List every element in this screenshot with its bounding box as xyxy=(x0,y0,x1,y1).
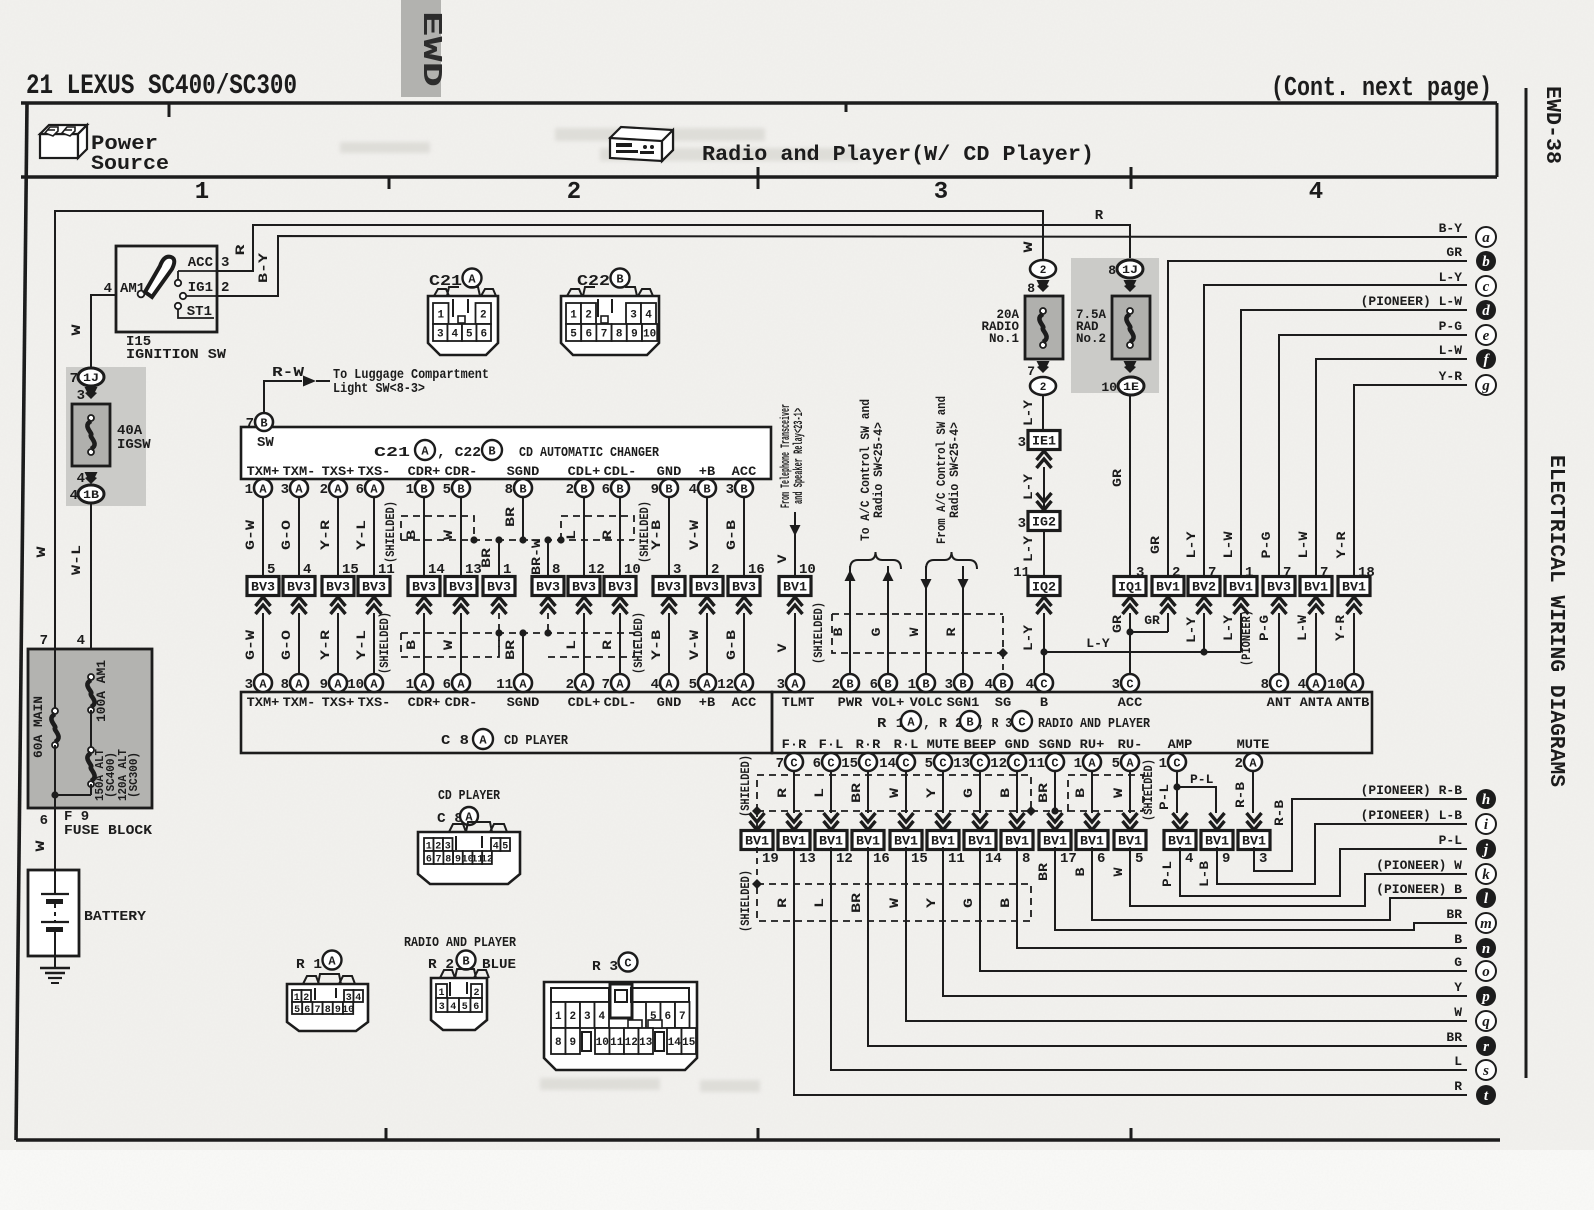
svg-text:TXS-: TXS- xyxy=(358,464,391,479)
svg-text:BV3: BV3 xyxy=(732,581,756,595)
svg-text:10: 10 xyxy=(347,677,364,693)
svg-text:B-Y: B-Y xyxy=(1439,221,1463,236)
svg-text:A: A xyxy=(791,678,799,692)
svg-text:(Cont. next page): (Cont. next page) xyxy=(1271,74,1492,104)
svg-text:Light SW<8-3>: Light SW<8-3> xyxy=(333,381,425,397)
svg-text:Y: Y xyxy=(925,787,939,798)
svg-text:5: 5 xyxy=(267,562,275,578)
svg-text:L: L xyxy=(565,530,579,540)
svg-text:IGSW: IGSW xyxy=(117,437,151,453)
svg-text:GND: GND xyxy=(657,695,682,710)
svg-text:R-B: R-B xyxy=(1234,781,1248,808)
svg-text:L-B: L-B xyxy=(1198,860,1212,887)
svg-text:ELECTRICAL WIRING DIAGRAMS: ELECTRICAL WIRING DIAGRAMS xyxy=(1544,455,1567,787)
svg-text:L: L xyxy=(813,898,827,908)
svg-text:A: A xyxy=(259,678,267,692)
svg-text:BATTERY: BATTERY xyxy=(84,909,147,925)
svg-text:2: 2 xyxy=(566,677,574,693)
svg-text:R: R xyxy=(945,627,959,637)
svg-text:B: B xyxy=(420,483,427,497)
svg-text:4: 4 xyxy=(651,677,659,693)
svg-text:n: n xyxy=(1482,941,1490,957)
svg-text:9: 9 xyxy=(1222,851,1230,867)
svg-text:G-B: G-B xyxy=(725,629,739,660)
svg-text:9: 9 xyxy=(651,482,659,498)
svg-text:CDL+: CDL+ xyxy=(568,695,601,710)
svg-text:Y: Y xyxy=(1454,980,1462,995)
svg-text:BR: BR xyxy=(1446,907,1462,922)
svg-text:B: B xyxy=(999,787,1013,798)
svg-text:P-G: P-G xyxy=(1260,532,1274,559)
svg-text:21 LEXUS SC400/SC300: 21 LEXUS SC400/SC300 xyxy=(26,71,297,102)
svg-text:(SHIELDED): (SHIELDED) xyxy=(1142,759,1156,821)
svg-text:CD PLAYER: CD PLAYER xyxy=(438,788,500,804)
svg-text:10: 10 xyxy=(342,1005,354,1016)
svg-text:4: 4 xyxy=(450,1002,456,1013)
svg-text:4: 4 xyxy=(77,633,85,649)
svg-text:SGND: SGND xyxy=(1039,737,1072,752)
svg-text:P-L: P-L xyxy=(1439,833,1463,848)
svg-text:5: 5 xyxy=(570,329,577,341)
svg-text:V: V xyxy=(776,643,790,653)
svg-text:9: 9 xyxy=(455,855,461,866)
svg-text:G: G xyxy=(962,898,976,908)
svg-text:13: 13 xyxy=(639,1037,653,1049)
svg-text:B: B xyxy=(462,955,469,969)
svg-text:11: 11 xyxy=(948,851,965,867)
svg-text:W: W xyxy=(1021,241,1036,252)
svg-text:17: 17 xyxy=(1060,851,1077,867)
svg-text:CDL-: CDL- xyxy=(604,464,637,479)
svg-text:4: 4 xyxy=(1185,851,1193,867)
svg-text:7: 7 xyxy=(776,756,784,772)
svg-text:7: 7 xyxy=(602,677,610,693)
svg-text:W-L: W-L xyxy=(69,545,84,575)
svg-text:To A/C Control SW and: To A/C Control SW and xyxy=(859,399,873,541)
svg-text:GR: GR xyxy=(1144,613,1160,628)
svg-text:R-B: R-B xyxy=(1273,799,1287,826)
svg-text:5: 5 xyxy=(925,756,933,772)
svg-text:P-G: P-G xyxy=(1439,319,1463,334)
svg-text:12: 12 xyxy=(836,851,853,867)
svg-text:C: C xyxy=(864,757,871,771)
svg-text:B: B xyxy=(703,483,710,497)
svg-text:6: 6 xyxy=(304,1005,310,1016)
svg-text:(SC300): (SC300) xyxy=(128,752,141,798)
svg-text:11: 11 xyxy=(378,562,395,578)
svg-text:10: 10 xyxy=(596,1037,609,1049)
svg-text:C21: C21 xyxy=(374,445,410,461)
svg-text:3: 3 xyxy=(1259,851,1267,867)
svg-text:8: 8 xyxy=(552,562,560,578)
svg-text:CDL-: CDL- xyxy=(604,695,637,710)
svg-text:Y-R: Y-R xyxy=(319,629,333,660)
svg-text:R·R: R·R xyxy=(856,737,881,752)
svg-text:(SHIELDED): (SHIELDED) xyxy=(812,602,826,664)
svg-text:G-B: G-B xyxy=(725,519,739,550)
svg-text:A: A xyxy=(457,678,465,692)
svg-text:Y-B: Y-B xyxy=(650,629,664,660)
svg-text:R: R xyxy=(776,897,790,908)
svg-text:10: 10 xyxy=(1327,677,1344,693)
svg-text:A: A xyxy=(580,678,588,692)
svg-text:5: 5 xyxy=(443,482,451,498)
svg-text:2: 2 xyxy=(1235,756,1243,772)
svg-text:BV1: BV1 xyxy=(1205,835,1229,849)
svg-text:5: 5 xyxy=(462,1002,468,1013)
svg-text:No.2: No.2 xyxy=(1076,332,1106,346)
svg-text:d: d xyxy=(1482,303,1490,319)
svg-text:A: A xyxy=(703,678,711,692)
svg-text:MUTE: MUTE xyxy=(1237,737,1270,752)
svg-text:B: B xyxy=(1454,932,1462,947)
svg-text:8: 8 xyxy=(1022,851,1030,867)
svg-text:BV3: BV3 xyxy=(572,581,596,595)
svg-text:TXM+: TXM+ xyxy=(247,695,280,710)
svg-text:BR: BR xyxy=(1446,1030,1462,1045)
svg-text:GR: GR xyxy=(1446,245,1462,260)
svg-text:TXM-: TXM- xyxy=(283,464,316,479)
svg-text:B: B xyxy=(1074,867,1088,877)
svg-text:BV3: BV3 xyxy=(251,581,275,595)
svg-text:FUSE BLOCK: FUSE BLOCK xyxy=(64,823,153,839)
svg-text:8: 8 xyxy=(445,855,451,866)
svg-text:A: A xyxy=(259,483,267,497)
svg-text:ACC: ACC xyxy=(1118,695,1143,710)
svg-text:A: A xyxy=(1350,678,1358,692)
svg-text:V: V xyxy=(776,554,790,564)
svg-text:A: A xyxy=(1088,757,1096,771)
svg-text:BV1: BV1 xyxy=(1229,581,1253,595)
svg-text:BV1: BV1 xyxy=(1005,835,1029,849)
svg-text:6: 6 xyxy=(473,1002,479,1013)
svg-text:+B: +B xyxy=(699,695,716,710)
svg-text:3: 3 xyxy=(281,482,289,498)
svg-text:A: A xyxy=(1312,678,1320,692)
svg-text:CDR-: CDR- xyxy=(445,464,478,479)
svg-text:BR: BR xyxy=(850,782,864,803)
svg-text:BR: BR xyxy=(1037,862,1051,881)
svg-text:G: G xyxy=(870,628,884,637)
svg-text:e: e xyxy=(1483,328,1490,344)
svg-text:1J: 1J xyxy=(83,373,99,385)
svg-text:PWR: PWR xyxy=(838,695,863,710)
svg-text:4: 4 xyxy=(451,329,458,341)
svg-text:q: q xyxy=(1482,1014,1490,1030)
svg-text:7: 7 xyxy=(679,1011,686,1023)
svg-text:GR: GR xyxy=(1111,614,1125,633)
svg-text:Y-R: Y-R xyxy=(1334,614,1348,641)
svg-text:R: R xyxy=(601,529,615,540)
svg-text:BV3: BV3 xyxy=(657,581,681,595)
svg-text:B: B xyxy=(405,639,419,650)
svg-text:A: A xyxy=(370,483,378,497)
svg-text:R 1: R 1 xyxy=(296,957,322,973)
svg-text:ACC: ACC xyxy=(188,255,214,271)
svg-text:15: 15 xyxy=(911,851,928,867)
svg-text:o: o xyxy=(1482,964,1490,980)
svg-text:BV3: BV3 xyxy=(326,581,350,595)
svg-text:12: 12 xyxy=(588,562,605,578)
svg-text:2: 2 xyxy=(320,482,328,498)
svg-text:3: 3 xyxy=(726,482,734,498)
svg-text:L: L xyxy=(813,788,827,798)
svg-text:BV3: BV3 xyxy=(362,581,386,595)
svg-text:6: 6 xyxy=(356,482,364,498)
svg-text:W: W xyxy=(442,529,456,540)
svg-text:11: 11 xyxy=(496,677,513,693)
svg-text:, R 2: , R 2 xyxy=(923,716,963,732)
svg-text:c: c xyxy=(1483,279,1490,295)
svg-text:2: 2 xyxy=(585,310,592,322)
svg-text:C: C xyxy=(1051,757,1058,771)
svg-text:R-W: R-W xyxy=(272,365,305,381)
svg-text:B: B xyxy=(999,897,1013,908)
svg-text:BV1: BV1 xyxy=(1043,835,1067,849)
svg-text:VOL+: VOL+ xyxy=(872,695,905,710)
svg-text:BV1: BV1 xyxy=(1168,835,1192,849)
svg-text:L-W: L-W xyxy=(1296,614,1310,641)
svg-text:(SHIELDED): (SHIELDED) xyxy=(739,755,753,817)
svg-text:C: C xyxy=(939,757,946,771)
svg-text:L-Y: L-Y xyxy=(1022,535,1036,562)
svg-text:A: A xyxy=(665,678,673,692)
svg-text:CD PLAYER: CD PLAYER xyxy=(504,733,568,749)
svg-text:7: 7 xyxy=(40,633,48,649)
svg-text:V-W: V-W xyxy=(688,519,702,550)
svg-text:L: L xyxy=(565,640,579,650)
svg-text:R: R xyxy=(233,244,248,255)
svg-text:G-O: G-O xyxy=(280,519,294,550)
svg-text:15: 15 xyxy=(682,1037,696,1049)
svg-text:B: B xyxy=(665,483,672,497)
svg-text:4: 4 xyxy=(70,488,78,504)
svg-text:9: 9 xyxy=(335,1005,341,1016)
svg-text:BV3: BV3 xyxy=(695,581,719,595)
svg-text:L-Y: L-Y xyxy=(1022,624,1036,651)
svg-text:p: p xyxy=(1480,989,1490,1005)
svg-text:1: 1 xyxy=(437,310,444,322)
svg-text:m: m xyxy=(1480,916,1492,932)
svg-text:Y-R: Y-R xyxy=(319,519,333,550)
svg-text:TLMT: TLMT xyxy=(782,695,815,710)
svg-text:12: 12 xyxy=(990,756,1007,772)
svg-text:1: 1 xyxy=(1074,756,1082,772)
svg-text:19: 19 xyxy=(762,851,779,867)
svg-text:A: A xyxy=(420,678,428,692)
svg-text:6: 6 xyxy=(443,677,451,693)
svg-text:L-Y: L-Y xyxy=(1185,531,1199,559)
svg-text:W: W xyxy=(442,639,456,650)
svg-text:A: A xyxy=(1249,757,1257,771)
svg-text:W: W xyxy=(1112,787,1126,798)
svg-text:(SHIELDED): (SHIELDED) xyxy=(632,612,646,674)
svg-text:2: 2 xyxy=(480,310,487,322)
svg-text:L-Y: L-Y xyxy=(1222,614,1236,641)
svg-text:(PIONEER): (PIONEER) xyxy=(1240,610,1254,666)
svg-text:2: 2 xyxy=(569,1011,576,1023)
svg-text:2: 2 xyxy=(567,179,581,206)
svg-text:12: 12 xyxy=(625,1037,638,1049)
svg-text:3: 3 xyxy=(945,677,953,693)
svg-text:B: B xyxy=(1040,695,1048,710)
svg-text:B: B xyxy=(457,483,464,497)
svg-text:8: 8 xyxy=(1108,263,1116,278)
svg-text:10: 10 xyxy=(624,562,641,578)
svg-text:8: 8 xyxy=(1027,281,1035,296)
svg-text:B: B xyxy=(519,483,526,497)
svg-text:RADIO AND PLAYER: RADIO AND PLAYER xyxy=(404,935,516,951)
svg-text:BEEP: BEEP xyxy=(964,737,997,752)
svg-text:(PIONEER) W: (PIONEER) W xyxy=(1376,858,1462,873)
svg-text:B: B xyxy=(488,445,495,459)
svg-text:4: 4 xyxy=(77,471,85,487)
svg-text:3: 3 xyxy=(1018,435,1026,451)
svg-text:7: 7 xyxy=(436,855,442,866)
svg-text:C: C xyxy=(1013,757,1020,771)
svg-text:7: 7 xyxy=(314,1005,320,1016)
svg-text:P-G: P-G xyxy=(1258,615,1272,641)
svg-text:RADIO AND PLAYER: RADIO AND PLAYER xyxy=(1038,716,1150,732)
svg-text:BR: BR xyxy=(504,506,518,527)
svg-text:BV1: BV1 xyxy=(1342,581,1366,595)
svg-text:BV1: BV1 xyxy=(968,835,992,849)
svg-text:BV1: BV1 xyxy=(894,835,918,849)
svg-text:10: 10 xyxy=(643,329,656,341)
svg-text:6: 6 xyxy=(1097,851,1105,867)
svg-text:A: A xyxy=(334,678,342,692)
svg-text:CDL+: CDL+ xyxy=(568,464,601,479)
svg-text:1: 1 xyxy=(245,482,253,498)
svg-text:BV1: BV1 xyxy=(1156,581,1180,595)
svg-text:BV1: BV1 xyxy=(819,835,843,849)
svg-text:13: 13 xyxy=(953,756,970,772)
svg-text:3: 3 xyxy=(777,677,785,693)
svg-text:A: A xyxy=(468,273,476,287)
svg-text:7: 7 xyxy=(70,371,78,387)
svg-text:C: C xyxy=(976,757,983,771)
svg-text:4: 4 xyxy=(985,677,993,693)
svg-text:14: 14 xyxy=(428,562,445,578)
svg-text:Y-L: Y-L xyxy=(355,520,369,550)
svg-text:5: 5 xyxy=(1135,851,1143,867)
svg-text:b: b xyxy=(1482,254,1490,270)
svg-text:GR: GR xyxy=(1111,468,1125,487)
svg-text:6: 6 xyxy=(664,1011,671,1023)
svg-text:7: 7 xyxy=(246,416,254,432)
svg-text:BV3: BV3 xyxy=(287,581,311,595)
svg-text:9: 9 xyxy=(320,677,328,693)
svg-text:g: g xyxy=(1481,378,1490,394)
svg-text:RU+: RU+ xyxy=(1080,737,1105,752)
svg-text:(PIONEER) B: (PIONEER) B xyxy=(1376,882,1462,897)
svg-text:TXM-: TXM- xyxy=(283,695,316,710)
svg-text:15: 15 xyxy=(342,562,359,578)
svg-text:5: 5 xyxy=(502,842,508,853)
svg-text:7: 7 xyxy=(601,329,608,341)
svg-text:3: 3 xyxy=(437,329,444,341)
svg-text:1: 1 xyxy=(1159,756,1167,772)
svg-text:TXS+: TXS+ xyxy=(322,695,355,710)
svg-text:1: 1 xyxy=(195,179,209,206)
svg-text:8: 8 xyxy=(616,329,623,341)
svg-text:V-W: V-W xyxy=(688,629,702,660)
svg-text:s: s xyxy=(1482,1063,1489,1079)
svg-text:P-L: P-L xyxy=(1190,772,1214,787)
svg-text:8: 8 xyxy=(325,1005,331,1016)
svg-text:B: B xyxy=(405,529,419,540)
svg-text:3: 3 xyxy=(934,179,948,206)
svg-text:W: W xyxy=(69,324,84,335)
svg-text:BR: BR xyxy=(480,547,494,568)
svg-text:6: 6 xyxy=(426,855,432,866)
svg-text:1J: 1J xyxy=(1122,265,1138,277)
svg-text:(SHIELDED): (SHIELDED) xyxy=(638,501,652,563)
svg-text:ANTB: ANTB xyxy=(1337,695,1370,710)
svg-text:6: 6 xyxy=(602,482,610,498)
svg-text:R: R xyxy=(1454,1079,1462,1094)
svg-text:3: 3 xyxy=(77,388,85,404)
svg-text:10: 10 xyxy=(1101,380,1117,395)
svg-text:TXM+: TXM+ xyxy=(247,464,280,479)
svg-text:G: G xyxy=(1454,955,1462,970)
svg-text:ANT: ANT xyxy=(1267,695,1292,710)
svg-text:EWD: EWD xyxy=(415,11,445,87)
svg-text:2: 2 xyxy=(711,562,719,578)
svg-text:G-W: G-W xyxy=(244,629,258,660)
svg-text:Source: Source xyxy=(91,153,169,176)
svg-text:BV3: BV3 xyxy=(536,581,560,595)
svg-text:L-Y: L-Y xyxy=(1185,616,1199,643)
svg-text:a: a xyxy=(1482,230,1490,246)
svg-text:L-Y: L-Y xyxy=(1086,636,1110,651)
svg-text:8: 8 xyxy=(555,1037,562,1049)
svg-text:W: W xyxy=(33,840,48,851)
svg-text:EWD-38: EWD-38 xyxy=(1540,86,1563,164)
svg-text:BR: BR xyxy=(1037,782,1051,803)
svg-text:B: B xyxy=(999,678,1006,692)
svg-text:CDR-: CDR- xyxy=(445,695,478,710)
svg-text:C: C xyxy=(1040,678,1047,692)
svg-text:3: 3 xyxy=(1018,516,1026,532)
svg-text:4: 4 xyxy=(1298,677,1306,693)
svg-text:4: 4 xyxy=(598,1011,605,1023)
svg-text:F·L: F·L xyxy=(819,737,844,752)
svg-text:VOLC: VOLC xyxy=(910,695,943,710)
svg-text:SGND: SGND xyxy=(507,464,540,479)
svg-text:B: B xyxy=(884,678,891,692)
svg-text:G: G xyxy=(962,788,976,798)
svg-text:+B: +B xyxy=(699,464,716,479)
svg-text:From Telephone Transceiver: From Telephone Transceiver xyxy=(779,404,793,508)
svg-text:BV1: BV1 xyxy=(931,835,955,849)
svg-text:5: 5 xyxy=(689,677,697,693)
svg-text:L-Y: L-Y xyxy=(1439,270,1463,285)
svg-text:and Speaker Relay<23-1>: and Speaker Relay<23-1> xyxy=(792,408,806,504)
svg-text:SW: SW xyxy=(257,435,274,451)
svg-text:A: A xyxy=(421,445,429,459)
svg-text:IG2: IG2 xyxy=(1032,516,1056,530)
svg-text:1: 1 xyxy=(503,562,511,578)
svg-text:BV1: BV1 xyxy=(783,581,807,595)
svg-text:4: 4 xyxy=(689,482,697,498)
svg-text:100A AM1: 100A AM1 xyxy=(94,660,109,722)
svg-text:, R 3: , R 3 xyxy=(978,716,1012,732)
svg-text:BV3: BV3 xyxy=(487,581,511,595)
svg-text:11: 11 xyxy=(610,1037,624,1049)
svg-text:16: 16 xyxy=(873,851,890,867)
svg-text:C: C xyxy=(902,757,909,771)
